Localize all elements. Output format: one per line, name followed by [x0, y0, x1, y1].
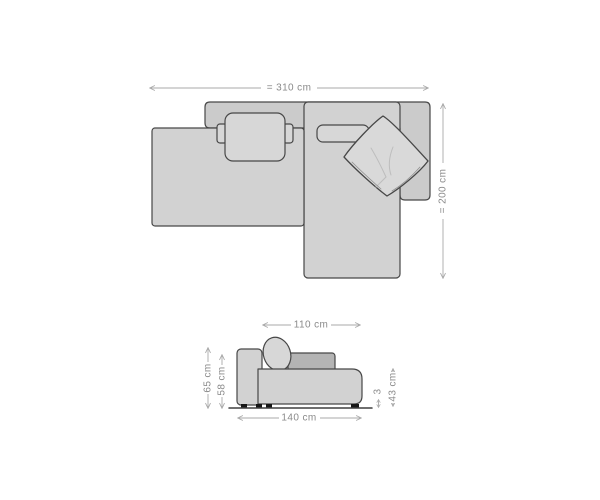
dimension-width-310: = 310 cm: [150, 82, 428, 94]
sofa-foot: [351, 404, 359, 408]
feet-height-label: 3: [373, 388, 384, 394]
dimension-seat-depth-110: 110 cm: [263, 319, 360, 331]
sofa-foot: [241, 404, 247, 408]
dimension-seat-height-43: 43 cm: [387, 369, 399, 406]
seat-height-label: 43 cm: [388, 372, 399, 401]
sofa-dimension-diagram: = 310 cm = 200 cm 110 cm: [0, 0, 600, 500]
diagram-canvas: = 310 cm = 200 cm 110 cm: [0, 0, 600, 500]
dimension-total-depth-140: 140 cm: [238, 412, 361, 424]
width-dimension-label: = 310 cm: [267, 83, 312, 94]
dimension-feet-height-3: 3: [373, 388, 384, 407]
seat-depth-label: 110 cm: [294, 320, 328, 331]
dimension-total-height-65: 65 cm: [202, 348, 214, 408]
sofa-side-view: 110 cm 140 cm 65 cm 58 cm 43 cm: [202, 319, 399, 424]
sofa-foot: [266, 404, 272, 408]
sofa-foot: [256, 404, 262, 408]
dimension-backrest-height-58: 58 cm: [216, 355, 228, 408]
sofa-top-view: = 310 cm = 200 cm: [150, 82, 449, 278]
dimension-depth-200: = 200 cm: [437, 104, 449, 278]
total-depth-label: 140 cm: [281, 413, 316, 424]
depth-dimension-label: = 200 cm: [438, 169, 449, 214]
top-view-headrest-cushion: [225, 113, 285, 161]
backrest-height-label: 58 cm: [217, 366, 228, 395]
total-height-label: 65 cm: [203, 363, 214, 392]
side-view-seat: [258, 369, 362, 404]
